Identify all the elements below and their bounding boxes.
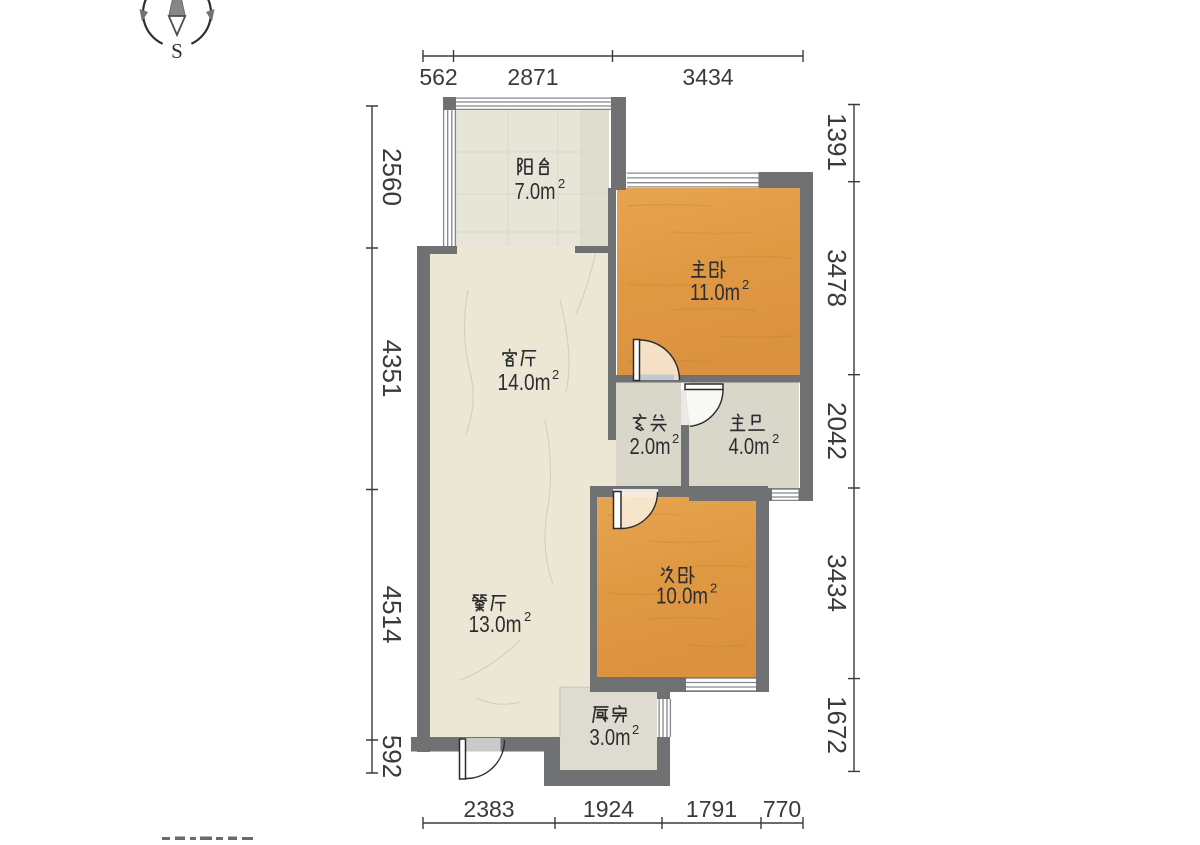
svg-text:2871: 2871	[507, 64, 558, 90]
svg-text:3434: 3434	[822, 554, 852, 612]
svg-text:14.0m: 14.0m	[498, 369, 551, 395]
svg-text:2: 2	[710, 581, 717, 596]
svg-text:1791: 1791	[686, 796, 737, 822]
svg-text:770: 770	[763, 796, 801, 822]
svg-text:S: S	[171, 39, 183, 63]
svg-text:11.0m: 11.0m	[690, 279, 740, 305]
svg-text:2: 2	[524, 609, 531, 624]
svg-text:3.0m: 3.0m	[590, 724, 631, 750]
svg-text:2.0m: 2.0m	[630, 433, 671, 459]
svg-text:10.0m: 10.0m	[656, 583, 708, 609]
svg-text:592: 592	[377, 735, 407, 778]
svg-text:2: 2	[558, 176, 565, 191]
svg-text:4514: 4514	[377, 586, 407, 644]
svg-text:3434: 3434	[682, 64, 733, 90]
svg-text:2: 2	[772, 431, 779, 446]
svg-text:13.0m: 13.0m	[469, 611, 522, 637]
svg-text:2383: 2383	[463, 796, 514, 822]
svg-text:1391: 1391	[822, 113, 852, 171]
svg-text:562: 562	[419, 64, 457, 90]
svg-text:2560: 2560	[377, 148, 407, 206]
svg-text:2: 2	[552, 367, 559, 382]
svg-text:1924: 1924	[583, 796, 634, 822]
svg-text:2: 2	[672, 431, 679, 446]
svg-text:2: 2	[632, 722, 639, 737]
svg-text:2042: 2042	[822, 402, 852, 460]
svg-text:1672: 1672	[822, 696, 852, 754]
svg-text:4351: 4351	[377, 340, 407, 398]
svg-text:4.0m: 4.0m	[729, 433, 770, 459]
svg-text:2: 2	[742, 277, 749, 292]
svg-text:7.0m: 7.0m	[515, 178, 556, 204]
svg-text:3478: 3478	[822, 249, 852, 307]
